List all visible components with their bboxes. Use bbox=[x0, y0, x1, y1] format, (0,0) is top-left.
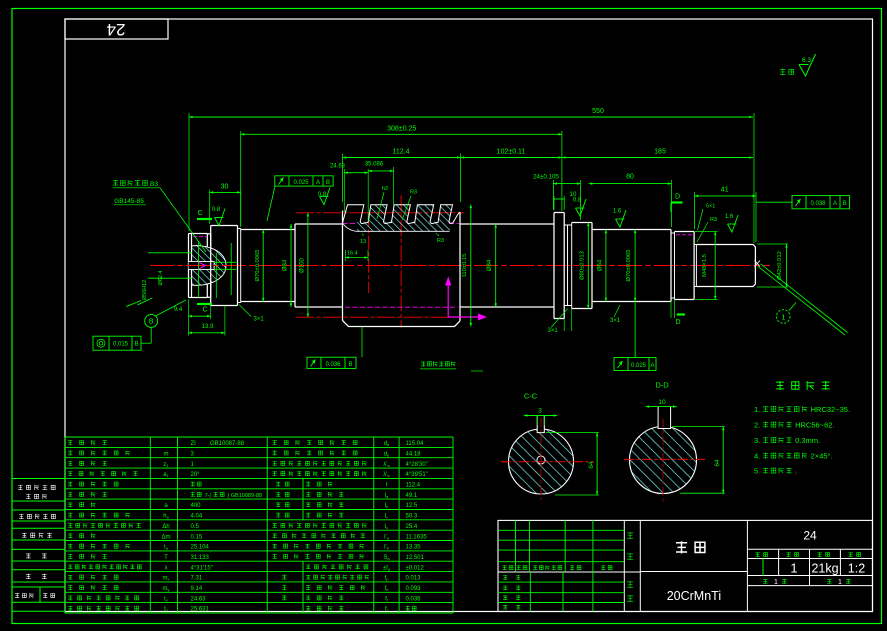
svg-text:1: 1 bbox=[838, 579, 842, 586]
svg-text:80: 80 bbox=[626, 174, 634, 181]
svg-text:10: 10 bbox=[658, 399, 666, 406]
svg-text:ZI: ZI bbox=[191, 441, 197, 447]
svg-text:1.6: 1.6 bbox=[725, 214, 734, 220]
svg-text:λ'a: λ'a bbox=[383, 462, 390, 468]
svg-text:0.8: 0.8 bbox=[318, 192, 327, 198]
svg-text:Ø100: Ø100 bbox=[299, 258, 305, 273]
svg-text:13: 13 bbox=[360, 239, 366, 245]
svg-text:mx: mx bbox=[163, 576, 170, 582]
svg-text:3.: 3. bbox=[754, 436, 760, 445]
svg-text:B3: B3 bbox=[150, 181, 158, 188]
svg-text:l'b: l'b bbox=[384, 545, 389, 551]
svg-text:Ø64: Ø64 bbox=[597, 259, 603, 271]
svg-text:16.4: 16.4 bbox=[347, 251, 358, 257]
svg-text:z1: z1 bbox=[163, 462, 169, 468]
svg-text:λ'b: λ'b bbox=[383, 472, 390, 478]
svg-text:31.133: 31.133 bbox=[191, 555, 210, 561]
svg-text:T: T bbox=[164, 555, 168, 561]
svg-text:C: C bbox=[197, 210, 202, 217]
svg-text:24.63: 24.63 bbox=[330, 164, 346, 170]
svg-text:308±0.25: 308±0.25 bbox=[387, 126, 416, 133]
svg-text:0.025: 0.025 bbox=[293, 180, 309, 186]
svg-text:6.3: 6.3 bbox=[802, 57, 811, 64]
svg-text:±0.012: ±0.012 bbox=[406, 565, 425, 571]
svg-text:0.013: 0.013 bbox=[406, 576, 422, 582]
svg-text:20CrMnTi: 20CrMnTi bbox=[667, 589, 721, 603]
svg-text:D: D bbox=[675, 194, 680, 201]
svg-text:tx: tx bbox=[164, 596, 168, 602]
svg-text:0.025: 0.025 bbox=[631, 363, 647, 369]
svg-text:lc: lc bbox=[385, 524, 388, 530]
svg-text:110±0.15: 110±0.15 bbox=[462, 254, 468, 278]
svg-text:C: C bbox=[202, 307, 207, 314]
svg-text:9.14: 9.14 bbox=[191, 586, 203, 592]
svg-text:25.4: 25.4 bbox=[406, 524, 418, 530]
svg-text:5.: 5. bbox=[754, 467, 760, 476]
svg-text:B: B bbox=[348, 362, 352, 368]
svg-text:ha: ha bbox=[163, 514, 169, 520]
svg-text:4.: 4. bbox=[754, 452, 760, 461]
svg-text:3×1: 3×1 bbox=[254, 317, 265, 323]
svg-text:M48×1.5: M48×1.5 bbox=[702, 254, 708, 277]
svg-text:400: 400 bbox=[191, 503, 202, 509]
svg-text:50.3: 50.3 bbox=[406, 514, 418, 520]
svg-text:C-C: C-C bbox=[524, 392, 538, 401]
svg-text:h2: h2 bbox=[382, 186, 388, 192]
svg-text:64: 64 bbox=[714, 459, 721, 467]
svg-text:4.04: 4.04 bbox=[191, 514, 203, 520]
svg-text:Ø70±0.0065: Ø70±0.0065 bbox=[255, 250, 261, 282]
svg-text:115.04: 115.04 bbox=[406, 441, 425, 447]
svg-text:Ø80±0.013: Ø80±0.013 bbox=[580, 251, 586, 280]
svg-text:1: 1 bbox=[790, 561, 797, 576]
svg-text:l'a: l'a bbox=[384, 534, 389, 540]
svg-text:7-(: 7-( bbox=[204, 493, 211, 499]
svg-text:0.5: 0.5 bbox=[191, 524, 200, 530]
svg-text:9.4: 9.4 bbox=[174, 307, 183, 313]
svg-text:da: da bbox=[384, 441, 390, 447]
svg-text:my: my bbox=[163, 586, 170, 592]
svg-text:1: 1 bbox=[774, 579, 778, 586]
svg-text:24±0.105: 24±0.105 bbox=[533, 174, 559, 181]
svg-text:GB10087-88: GB10087-88 bbox=[210, 441, 245, 447]
svg-text:1: 1 bbox=[781, 313, 785, 322]
svg-text:102±0.11: 102±0.11 bbox=[497, 149, 526, 156]
svg-text:Δm: Δm bbox=[161, 534, 170, 540]
svg-text:Ø84: Ø84 bbox=[487, 259, 493, 271]
svg-text:Δh: Δh bbox=[162, 524, 169, 530]
svg-text:a1: a1 bbox=[163, 472, 169, 478]
svg-text:de: de bbox=[384, 451, 390, 457]
svg-text:A: A bbox=[316, 180, 320, 186]
svg-text:1:2: 1:2 bbox=[848, 562, 865, 576]
svg-text:12.5: 12.5 bbox=[406, 503, 418, 509]
svg-text:24.63: 24.63 bbox=[191, 596, 207, 602]
svg-text:±fa: ±fa bbox=[383, 565, 391, 571]
svg-text:1.: 1. bbox=[754, 405, 760, 414]
svg-text:0.3mm.: 0.3mm. bbox=[795, 436, 820, 445]
svg-text:185: 185 bbox=[654, 149, 666, 156]
svg-text:A: A bbox=[650, 363, 654, 369]
svg-text:Sa: Sa bbox=[383, 555, 390, 561]
svg-text:B: B bbox=[149, 319, 154, 326]
svg-text:12.501: 12.501 bbox=[406, 555, 425, 561]
svg-text:49.1: 49.1 bbox=[406, 493, 418, 499]
svg-text:0.093: 0.093 bbox=[406, 586, 422, 592]
svg-text:) GB10089-88: ) GB10089-88 bbox=[227, 493, 262, 499]
svg-text:B: B bbox=[134, 342, 138, 348]
svg-text:Ø62.4: Ø62.4 bbox=[158, 271, 164, 286]
svg-text:A: A bbox=[833, 201, 837, 207]
svg-text:2.: 2. bbox=[754, 421, 760, 430]
svg-text:D-D: D-D bbox=[655, 381, 669, 390]
svg-text:13.9: 13.9 bbox=[202, 324, 214, 330]
svg-text:24: 24 bbox=[803, 529, 817, 543]
svg-text:B: B bbox=[843, 201, 847, 207]
svg-text:112.4: 112.4 bbox=[406, 482, 421, 488]
svg-text:D: D bbox=[675, 319, 680, 326]
svg-text:2×45°.: 2×45°. bbox=[811, 452, 833, 461]
svg-text:4°39'51": 4°39'51" bbox=[406, 472, 428, 478]
svg-text:0.038: 0.038 bbox=[810, 201, 826, 207]
svg-text:3×1: 3×1 bbox=[610, 318, 621, 324]
svg-text:41: 41 bbox=[721, 187, 729, 194]
svg-text:GB145-85: GB145-85 bbox=[114, 198, 144, 205]
svg-text:0.036: 0.036 bbox=[406, 596, 422, 602]
svg-text:Ø84: Ø84 bbox=[283, 259, 289, 271]
svg-text:30: 30 bbox=[221, 184, 229, 191]
svg-text:Ø70±0.0065: Ø70±0.0065 bbox=[626, 250, 632, 282]
svg-text:4°28'30": 4°28'30" bbox=[406, 462, 428, 468]
svg-text:R3: R3 bbox=[410, 190, 417, 196]
svg-text:HRC32~35.: HRC32~35. bbox=[811, 405, 850, 414]
svg-text:11.1635: 11.1635 bbox=[406, 534, 428, 540]
svg-text:0.15: 0.15 bbox=[191, 534, 203, 540]
svg-text:ty: ty bbox=[164, 607, 168, 613]
svg-text:1.6: 1.6 bbox=[613, 209, 622, 215]
svg-text:4°31'15": 4°31'15" bbox=[191, 565, 213, 571]
svg-text:0.8: 0.8 bbox=[573, 198, 582, 204]
svg-text:0.8: 0.8 bbox=[212, 207, 221, 213]
svg-text:Ø56H12: Ø56H12 bbox=[142, 280, 148, 301]
svg-text:0.015: 0.015 bbox=[113, 342, 129, 348]
svg-text:550: 550 bbox=[592, 108, 604, 115]
svg-text:Ø42±0.012: Ø42±0.012 bbox=[777, 251, 783, 280]
svg-text:3: 3 bbox=[538, 408, 542, 415]
svg-text:25.631: 25.631 bbox=[191, 607, 210, 613]
svg-text:112.4: 112.4 bbox=[393, 149, 410, 156]
svg-text:35.086: 35.086 bbox=[365, 162, 384, 168]
svg-text:13.35: 13.35 bbox=[406, 545, 422, 551]
svg-text:l: l bbox=[386, 482, 387, 488]
svg-text:20°: 20° bbox=[191, 472, 201, 478]
svg-text:.: . bbox=[795, 467, 797, 476]
svg-text:5×1: 5×1 bbox=[706, 204, 715, 210]
svg-text:B: B bbox=[326, 180, 330, 186]
svg-text:64: 64 bbox=[588, 461, 595, 469]
svg-text:m: m bbox=[164, 451, 169, 457]
svg-text:44.18: 44.18 bbox=[406, 451, 422, 457]
svg-text:24: 24 bbox=[107, 20, 126, 39]
svg-text:0.036: 0.036 bbox=[325, 362, 341, 368]
svg-text:λ: λ bbox=[165, 565, 168, 571]
svg-text:3×1: 3×1 bbox=[548, 328, 559, 334]
svg-text:25.104: 25.104 bbox=[191, 545, 210, 551]
svg-text:7.31: 7.31 bbox=[191, 576, 203, 582]
svg-text:R3: R3 bbox=[710, 217, 717, 223]
svg-text:HRC56~62.: HRC56~62. bbox=[795, 421, 834, 430]
svg-text:R3: R3 bbox=[437, 238, 444, 244]
svg-text:21kg: 21kg bbox=[811, 562, 838, 576]
